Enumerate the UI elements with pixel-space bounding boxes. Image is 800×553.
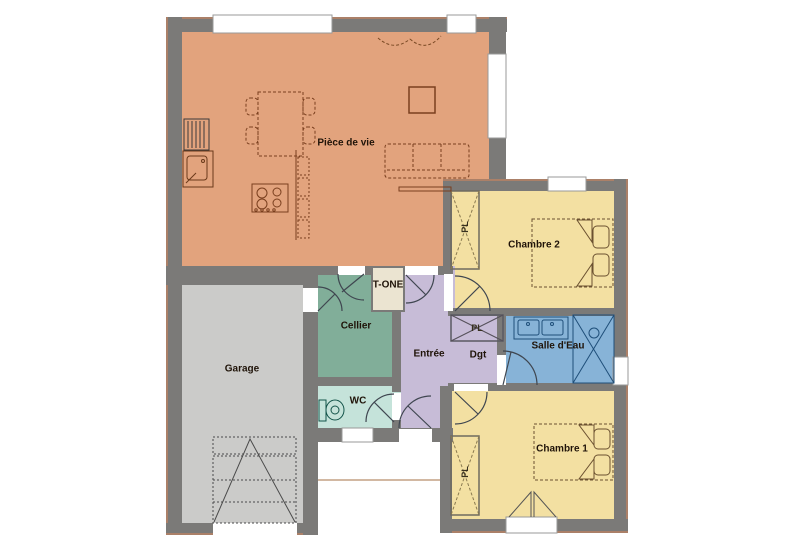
garage-cellier-door-gap <box>303 288 318 312</box>
bed-chambre2-icon <box>532 219 613 287</box>
label-pl-chambre2: PL <box>460 221 470 233</box>
window-living-right <box>488 54 506 138</box>
chambre1-door-gap <box>454 384 488 391</box>
dining-table-icon <box>246 92 315 156</box>
door-wc <box>366 394 394 422</box>
window-chambre2 <box>548 177 586 191</box>
door-entree <box>406 275 434 303</box>
entree-door-gap <box>405 266 438 275</box>
sofa-icon <box>385 144 469 178</box>
kitchen-appliance-icon <box>184 119 209 150</box>
door-cellier-from-garage <box>318 287 342 311</box>
door-salle-eau <box>503 351 537 385</box>
window-chambre1-casements <box>509 492 556 517</box>
window-living-top <box>213 15 332 33</box>
label-dgt: Dgt <box>470 350 487 361</box>
label-t-one: T-ONE <box>373 280 404 291</box>
label-piece-de-vie: Pièce de vie <box>317 138 374 149</box>
tv-stand-icon <box>399 187 451 191</box>
door-chambre1 <box>455 392 487 424</box>
front-door-gap <box>399 429 432 442</box>
door-chambre2 <box>455 276 490 311</box>
kitchen-counter-icon <box>296 150 309 240</box>
label-salle-eau: Salle d'Eau <box>532 341 585 352</box>
label-chambre-2: Chambre 2 <box>508 240 560 251</box>
double-sink-icon <box>514 317 568 339</box>
door-cellier-from-living <box>338 274 364 300</box>
window-salle-eau <box>613 357 628 385</box>
label-wc: WC <box>350 396 367 407</box>
garage-door-icon <box>213 437 296 523</box>
wc-door-gap <box>392 393 401 420</box>
label-chambre-1: Chambre 1 <box>536 444 588 455</box>
kitchen-sink-icon <box>183 151 213 187</box>
square-furniture-icon <box>409 87 435 113</box>
window-living-top-2 <box>447 15 476 33</box>
chambre2-door-gap <box>444 274 453 311</box>
garage-door-opening <box>213 523 297 535</box>
label-cellier: Cellier <box>341 321 372 332</box>
curtain-icon <box>378 36 441 45</box>
label-garage: Garage <box>225 364 259 375</box>
window-wc <box>342 428 373 442</box>
door-front <box>399 396 431 428</box>
floor-plan-canvas: Pièce de vie Chambre 2 Garage Cellier T-… <box>0 0 800 553</box>
toilet-icon <box>319 400 344 421</box>
cooktop-icon <box>252 184 288 212</box>
label-pl-chambre1: PL <box>460 466 470 478</box>
cellier-door-gap <box>338 266 365 275</box>
window-chambre1 <box>506 517 557 533</box>
label-entree: Entrée <box>413 349 444 360</box>
label-pl-dgt: PL <box>471 323 483 333</box>
plan-symbols-overlay <box>0 0 800 553</box>
